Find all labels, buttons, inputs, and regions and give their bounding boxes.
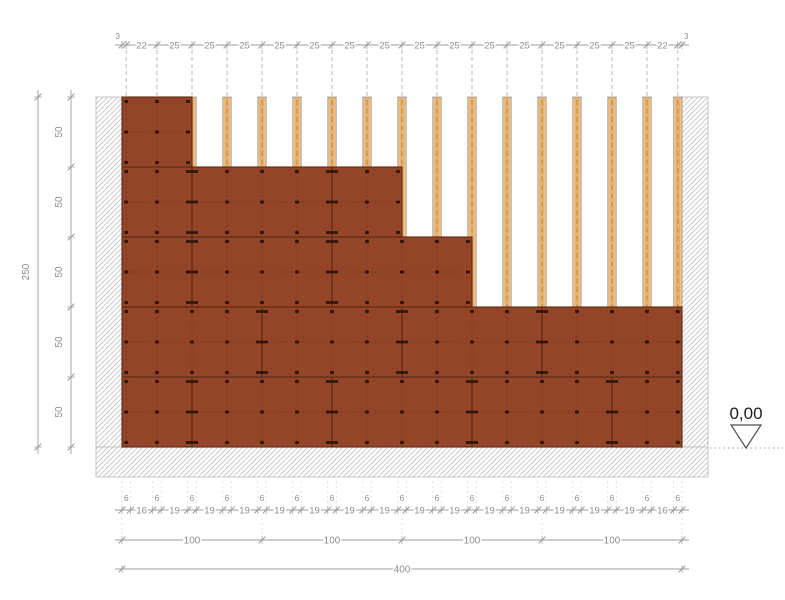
- dim-label-stud-width: 6: [470, 493, 475, 503]
- screw-dot: [326, 231, 330, 234]
- screw-dot: [124, 441, 128, 444]
- left-dimension-chains: 2505050505050: [21, 90, 75, 454]
- screw-dot: [610, 411, 614, 414]
- screw-dot: [676, 310, 680, 313]
- screw-dot: [225, 371, 229, 374]
- screw-dot: [186, 441, 190, 444]
- dim-label-100: 100: [604, 536, 621, 547]
- screw-dot: [365, 301, 369, 304]
- dim-label-top: 25: [309, 41, 320, 52]
- bottom-dimension-chains: 100100100100400: [115, 518, 689, 576]
- screw-dot: [190, 240, 194, 243]
- screw-dot: [260, 380, 264, 383]
- level-label: 0,00: [729, 404, 762, 423]
- screw-dot: [225, 341, 229, 344]
- screw-dot: [190, 271, 194, 274]
- dim-label-stud-width: 6: [675, 493, 680, 503]
- screw-dot: [326, 301, 330, 304]
- screw-dot: [264, 341, 268, 344]
- screw-dot: [365, 371, 369, 374]
- screw-dot: [536, 310, 540, 313]
- screw-dot: [194, 301, 198, 304]
- screw-dot: [470, 441, 474, 444]
- screw-dot: [575, 380, 579, 383]
- screw-dot: [400, 271, 404, 274]
- screw-dot: [186, 161, 190, 164]
- screw-dot: [225, 240, 229, 243]
- screw-dot: [365, 380, 369, 383]
- screw-dot: [400, 380, 404, 383]
- wall-elevation-drawing: 3222525252525252525252525252525223250505…: [0, 0, 785, 600]
- screw-dot: [334, 201, 338, 204]
- dim-label-top: 3: [684, 32, 689, 41]
- screw-dot: [155, 380, 159, 383]
- dim-label-stud-width: 6: [295, 493, 300, 503]
- screw-dot: [194, 231, 198, 234]
- screw-dot: [186, 231, 190, 234]
- screw-dot: [155, 170, 159, 173]
- dim-label-left: 50: [54, 336, 65, 348]
- screw-dot: [606, 380, 610, 383]
- screw-dot: [645, 310, 649, 313]
- screw-dot: [225, 271, 229, 274]
- screw-dot: [124, 131, 128, 134]
- screw-dot: [295, 201, 299, 204]
- screw-dot: [326, 441, 330, 444]
- dim-label-gap: 16: [136, 506, 147, 517]
- screw-dot: [505, 411, 509, 414]
- screw-dot: [365, 411, 369, 414]
- screw-dot: [330, 240, 334, 243]
- screw-dot: [474, 380, 478, 383]
- dim-label-stud-width: 6: [124, 493, 129, 503]
- screw-dot: [124, 170, 128, 173]
- screw-dot: [466, 411, 470, 414]
- screw-dot: [536, 341, 540, 344]
- dim-label-gap: 19: [624, 506, 635, 517]
- dim-label-top: 25: [344, 41, 355, 52]
- dim-label-gap: 19: [589, 506, 600, 517]
- screw-dot: [225, 301, 229, 304]
- screw-dot: [610, 371, 614, 374]
- screw-dot: [610, 380, 614, 383]
- screw-dot: [536, 371, 540, 374]
- screw-dot: [124, 411, 128, 414]
- dim-label-top: 25: [519, 41, 530, 52]
- screw-dot: [474, 411, 478, 414]
- screw-dot: [396, 201, 400, 204]
- screw-dot: [155, 271, 159, 274]
- screw-dot: [540, 341, 544, 344]
- screw-dot: [404, 310, 408, 313]
- screw-dot: [190, 201, 194, 204]
- screw-dot: [396, 371, 400, 374]
- screw-dot: [155, 231, 159, 234]
- screw-dot: [186, 411, 190, 414]
- screw-dot: [334, 411, 338, 414]
- screw-dot: [186, 170, 190, 173]
- screw-dot: [260, 341, 264, 344]
- screw-dot: [326, 170, 330, 173]
- dim-label-stud-width: 6: [505, 493, 510, 503]
- screw-dot: [155, 310, 159, 313]
- screw-dot: [330, 201, 334, 204]
- screw-dot: [435, 380, 439, 383]
- screw-dot: [676, 411, 680, 414]
- dim-label-gap: 19: [344, 506, 355, 517]
- screw-dot: [190, 371, 194, 374]
- screw-dot: [260, 310, 264, 313]
- dim-label-gap: 19: [239, 506, 250, 517]
- screw-dot: [124, 201, 128, 204]
- screw-dot: [474, 441, 478, 444]
- screw-dot: [645, 441, 649, 444]
- screw-dot: [225, 411, 229, 414]
- screw-dot: [190, 301, 194, 304]
- dim-label-100: 100: [184, 536, 201, 547]
- left-wall-hatch: [96, 97, 122, 447]
- screw-dot: [540, 441, 544, 444]
- stud-centerline-guides: [126, 50, 678, 96]
- screw-dot: [295, 341, 299, 344]
- screw-dot: [260, 301, 264, 304]
- screw-dot: [400, 441, 404, 444]
- screw-dot: [124, 301, 128, 304]
- screw-dot: [330, 441, 334, 444]
- screw-dot: [365, 341, 369, 344]
- screw-dot: [264, 371, 268, 374]
- screw-dot: [505, 310, 509, 313]
- screw-dot: [396, 170, 400, 173]
- screw-dot: [505, 371, 509, 374]
- dim-label-100: 100: [464, 536, 481, 547]
- top-dimension-chain: 3222525252525252525252525252525223: [115, 32, 689, 52]
- dim-label-stud-width: 6: [575, 493, 580, 503]
- screw-dot: [645, 411, 649, 414]
- dim-label-gap: 19: [204, 506, 215, 517]
- screw-dot: [330, 170, 334, 173]
- screw-dot: [186, 131, 190, 134]
- screw-dot: [155, 100, 159, 103]
- screw-dot: [645, 380, 649, 383]
- screw-dot: [400, 240, 404, 243]
- screw-dot: [365, 271, 369, 274]
- screw-dot: [676, 380, 680, 383]
- screw-dot: [470, 411, 474, 414]
- dim-label-top: 25: [169, 41, 180, 52]
- screw-dot: [404, 371, 408, 374]
- screw-dot: [334, 380, 338, 383]
- screw-dot: [124, 161, 128, 164]
- screw-dot: [326, 240, 330, 243]
- screw-dot: [295, 240, 299, 243]
- screw-dot: [124, 240, 128, 243]
- screw-dot: [466, 441, 470, 444]
- screw-dot: [330, 301, 334, 304]
- dim-label-stud-width: 6: [645, 493, 650, 503]
- screw-dot: [435, 271, 439, 274]
- screw-dot: [295, 231, 299, 234]
- screw-dot: [295, 271, 299, 274]
- dim-label-gap: 19: [379, 506, 390, 517]
- screw-dot: [396, 341, 400, 344]
- screw-dot: [225, 201, 229, 204]
- screw-dot: [295, 310, 299, 313]
- screw-dot: [190, 231, 194, 234]
- screw-dot: [155, 161, 159, 164]
- screw-dot: [505, 441, 509, 444]
- screw-dot: [194, 170, 198, 173]
- screw-dot: [645, 341, 649, 344]
- screw-dot: [466, 380, 470, 383]
- dim-label-stud-width: 6: [400, 493, 405, 503]
- screw-dot: [334, 170, 338, 173]
- screw-dot: [330, 380, 334, 383]
- footing-hatch: [96, 447, 708, 477]
- screw-dot: [260, 411, 264, 414]
- screw-dot: [435, 240, 439, 243]
- screw-dot: [334, 271, 338, 274]
- screw-dot: [365, 201, 369, 204]
- screw-dot: [194, 201, 198, 204]
- screw-dot: [186, 301, 190, 304]
- dim-label-gap: 19: [484, 506, 495, 517]
- screw-dot: [194, 380, 198, 383]
- dim-label-stud-width: 6: [330, 493, 335, 503]
- screw-dot: [575, 310, 579, 313]
- dim-label-top: 25: [379, 41, 390, 52]
- screw-dot: [610, 341, 614, 344]
- screw-dot: [575, 341, 579, 344]
- screw-dot: [400, 301, 404, 304]
- screw-dot: [334, 441, 338, 444]
- screw-dot: [260, 231, 264, 234]
- screw-dot: [614, 411, 618, 414]
- screw-dot: [676, 341, 680, 344]
- screw-dot: [330, 411, 334, 414]
- screw-dot: [544, 341, 548, 344]
- screw-dot: [365, 240, 369, 243]
- screw-dot: [575, 441, 579, 444]
- screw-dot: [334, 301, 338, 304]
- screw-dot: [365, 231, 369, 234]
- screw-dot: [186, 380, 190, 383]
- screw-dot: [334, 231, 338, 234]
- level-triangle-icon: [731, 425, 761, 448]
- dim-label-gap: 19: [554, 506, 565, 517]
- dim-label-stud-width: 6: [365, 493, 370, 503]
- screw-dot: [400, 310, 404, 313]
- screw-dot: [264, 310, 268, 313]
- screw-dot: [260, 170, 264, 173]
- screw-dot: [466, 240, 470, 243]
- screw-dot: [260, 371, 264, 374]
- screw-dot: [155, 441, 159, 444]
- dim-label-left: 50: [54, 406, 65, 418]
- screw-dot: [295, 371, 299, 374]
- screw-dot: [614, 441, 618, 444]
- screw-dot: [404, 341, 408, 344]
- screw-dot: [256, 371, 260, 374]
- screw-dot: [330, 341, 334, 344]
- bottom-fine-dimension-chain: 6166196196196196196196196196196196196196…: [115, 481, 689, 517]
- screw-dot: [190, 380, 194, 383]
- screw-dot: [544, 371, 548, 374]
- screw-dot: [365, 441, 369, 444]
- dim-label-gap: 19: [169, 506, 180, 517]
- screw-dot: [326, 271, 330, 274]
- dim-label-left: 50: [54, 266, 65, 278]
- dim-label-stud-width: 6: [155, 493, 160, 503]
- dim-label-stud-width: 6: [225, 493, 230, 503]
- dim-label-top: 22: [657, 41, 668, 52]
- screw-dot: [610, 441, 614, 444]
- dim-label-top: 25: [554, 41, 565, 52]
- screw-dot: [544, 310, 548, 313]
- screw-dot: [396, 310, 400, 313]
- dim-label-stud-width: 6: [540, 493, 545, 503]
- screw-dot: [225, 441, 229, 444]
- screw-dot: [124, 310, 128, 313]
- screw-dot: [155, 411, 159, 414]
- dim-label-gap: 16: [657, 506, 668, 517]
- screw-dot: [470, 310, 474, 313]
- screw-dot: [676, 441, 680, 444]
- screw-dot: [190, 411, 194, 414]
- dim-label-left-total: 250: [21, 263, 32, 280]
- screw-dot: [575, 411, 579, 414]
- dim-label-top: 25: [589, 41, 600, 52]
- screw-dot: [155, 131, 159, 134]
- screw-dot: [396, 231, 400, 234]
- screw-dot: [435, 301, 439, 304]
- screw-dot: [606, 411, 610, 414]
- screw-dot: [326, 411, 330, 414]
- screw-dot: [124, 100, 128, 103]
- dim-label-top: 25: [484, 41, 495, 52]
- dim-label-top: 22: [136, 41, 147, 52]
- screw-dot: [365, 310, 369, 313]
- dim-label-stud-width: 6: [610, 493, 615, 503]
- screw-dot: [260, 201, 264, 204]
- screw-dot: [256, 310, 260, 313]
- screw-dot: [194, 271, 198, 274]
- dim-label-top: 25: [239, 41, 250, 52]
- screw-dot: [435, 310, 439, 313]
- screw-dot: [326, 380, 330, 383]
- screw-dot: [540, 371, 544, 374]
- screw-dot: [470, 341, 474, 344]
- screw-dot: [505, 380, 509, 383]
- dim-label-top: 25: [204, 41, 215, 52]
- screw-dot: [330, 371, 334, 374]
- screw-dot: [225, 170, 229, 173]
- screw-dot: [190, 170, 194, 173]
- screw-dot: [470, 371, 474, 374]
- screw-dot: [155, 240, 159, 243]
- screw-dot: [295, 441, 299, 444]
- screw-dot: [225, 380, 229, 383]
- dim-label-gap: 19: [309, 506, 320, 517]
- right-wall-hatch: [682, 97, 708, 447]
- screw-dot: [124, 271, 128, 274]
- dim-label-100: 100: [324, 536, 341, 547]
- dim-label-stud-width: 6: [190, 493, 195, 503]
- dim-label-gap: 19: [449, 506, 460, 517]
- screw-dot: [186, 100, 190, 103]
- screw-dot: [225, 310, 229, 313]
- screw-dot: [470, 380, 474, 383]
- screw-dot: [260, 271, 264, 274]
- screw-dot: [194, 441, 198, 444]
- screw-dot: [194, 240, 198, 243]
- screw-dot: [186, 240, 190, 243]
- dim-label-top: 25: [414, 41, 425, 52]
- screw-dot: [614, 380, 618, 383]
- screw-dot: [676, 371, 680, 374]
- drawing-canvas: 3222525252525252525252525252525223250505…: [0, 0, 785, 600]
- screw-dot: [124, 231, 128, 234]
- dim-label-stud-width: 6: [435, 493, 440, 503]
- screw-dot: [466, 271, 470, 274]
- screw-dot: [610, 310, 614, 313]
- screw-dot: [295, 301, 299, 304]
- dim-label-top: 25: [449, 41, 460, 52]
- screw-dot: [400, 411, 404, 414]
- screw-dot: [400, 371, 404, 374]
- screw-dot: [186, 201, 190, 204]
- screw-dot: [155, 371, 159, 374]
- screw-dot: [540, 310, 544, 313]
- screw-dot: [435, 411, 439, 414]
- dim-label-left: 50: [54, 196, 65, 208]
- screw-dot: [326, 201, 330, 204]
- screw-dot: [435, 441, 439, 444]
- screw-dot: [330, 310, 334, 313]
- screw-dot: [645, 371, 649, 374]
- dim-label-total-width: 400: [394, 565, 411, 576]
- screw-dot: [190, 310, 194, 313]
- screw-dot: [540, 411, 544, 414]
- screw-dot: [124, 341, 128, 344]
- screw-dot: [225, 231, 229, 234]
- dim-label-gap: 19: [414, 506, 425, 517]
- screw-dot: [256, 341, 260, 344]
- screw-dot: [295, 411, 299, 414]
- dim-label-top: 25: [624, 41, 635, 52]
- dim-label-left: 50: [54, 126, 65, 138]
- screw-dot: [295, 170, 299, 173]
- screw-dot: [330, 271, 334, 274]
- screw-dot: [124, 371, 128, 374]
- level-marker: 0,00: [710, 404, 783, 448]
- screw-dot: [505, 341, 509, 344]
- screw-dot: [365, 170, 369, 173]
- screw-dot: [575, 371, 579, 374]
- screw-dot: [155, 301, 159, 304]
- screw-dot: [435, 341, 439, 344]
- screw-dot: [466, 301, 470, 304]
- dim-label-gap: 19: [519, 506, 530, 517]
- dim-label-top: 25: [274, 41, 285, 52]
- dim-label-top: 3: [116, 32, 121, 41]
- screw-dot: [155, 201, 159, 204]
- screw-dot: [190, 441, 194, 444]
- screw-dot: [260, 240, 264, 243]
- dim-label-stud-width: 6: [260, 493, 265, 503]
- screw-dot: [435, 371, 439, 374]
- screw-dot: [155, 341, 159, 344]
